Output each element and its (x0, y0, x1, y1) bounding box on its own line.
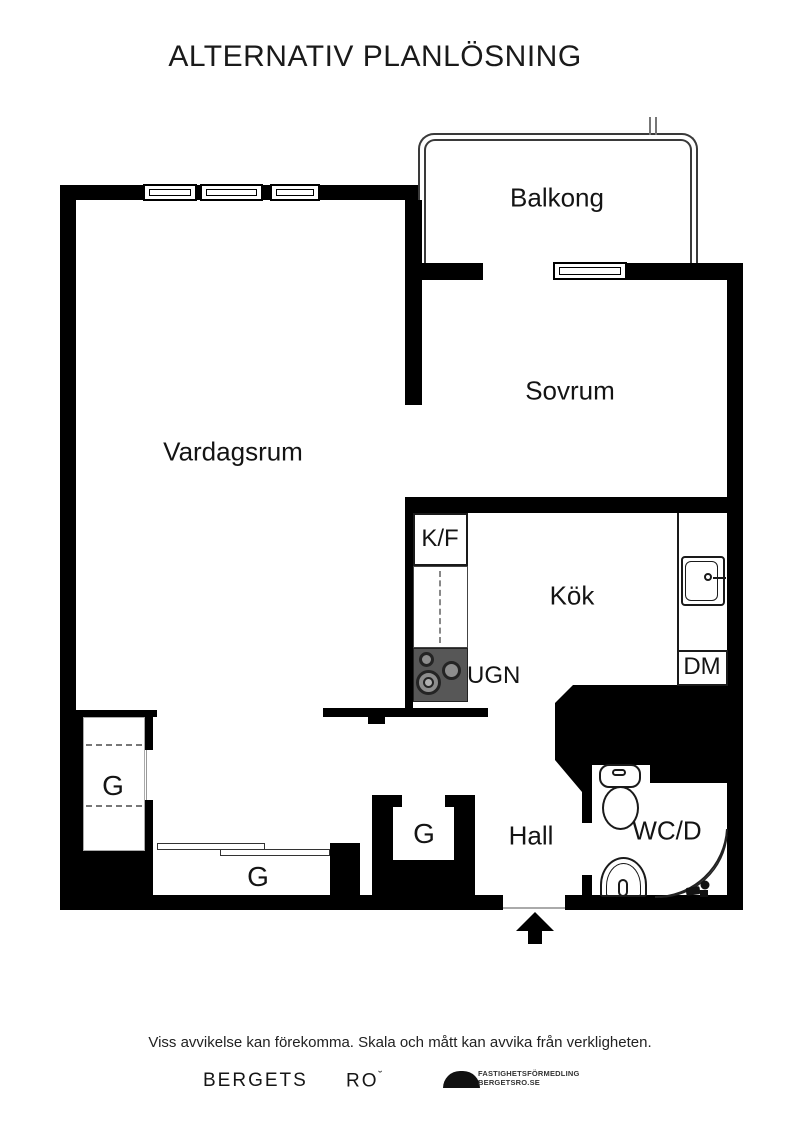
tall-wardrobe-door-line (146, 750, 147, 800)
stove-burner-small (419, 652, 434, 667)
bathroom-sink-tap (618, 879, 628, 897)
brand-word-bergets: BERGETS (203, 1070, 308, 1092)
kitchen-faucet (704, 573, 712, 581)
brand-word-ro-text: RO (346, 1070, 379, 1091)
floorplan-page: ALTERNATIV PLANLÖSNING (0, 0, 800, 1131)
right-wall (727, 263, 743, 910)
sliding-door-2 (220, 849, 330, 856)
window-pane (276, 189, 314, 196)
room-label-bedroom: Sovrum (525, 376, 615, 407)
livingroom-window-1 (143, 184, 197, 201)
room-label-living-room: Vardagsrum (163, 437, 303, 468)
wide-wardrobe-end-wall (330, 843, 360, 895)
livingroom-window-3 (270, 184, 320, 201)
bottom-left-corner-block (60, 851, 153, 910)
livingroom-window-2 (200, 184, 263, 201)
bathroom-wall-mass (555, 685, 728, 824)
kitchen-sink-basin (685, 561, 718, 601)
brand-word-ro: RO˘ (346, 1070, 382, 1092)
label-dishwasher: DM (683, 653, 720, 681)
window-pane (149, 189, 191, 196)
bedroom-top-wall-right (627, 263, 743, 280)
brand-subtext-line1: FASTIGHETSFÖRMEDLING (478, 1069, 580, 1078)
kitchen-divider-wall (405, 497, 743, 513)
page-title: ALTERNATIV PLANLÖSNING (168, 40, 581, 74)
bathroom-door-stub (582, 875, 592, 895)
livingroom-bottom-wall-right (323, 708, 488, 717)
room-label-hall: Hall (509, 821, 554, 852)
entrance-arrow (516, 912, 554, 944)
brand-subtext: FASTIGHETSFÖRMEDLING BERGETSRO.SE (478, 1069, 580, 1087)
window-pane (559, 267, 621, 275)
label-wardrobe-hall: G (413, 818, 435, 850)
label-wardrobe-wide: G (247, 861, 269, 893)
label-oven: UGN (467, 662, 520, 690)
hall-wardrobe-door-opening (402, 795, 445, 808)
label-fridge-freezer: K/F (421, 525, 458, 553)
livingroom-bottom-wall-stub (368, 717, 385, 724)
toilet-flush-button (612, 769, 626, 776)
balcony-vent-mark (649, 117, 657, 135)
brand-trademark: ˘ (379, 1070, 383, 1082)
bedroom-left-wall (405, 200, 422, 405)
left-wall (60, 185, 76, 910)
label-wardrobe-tall: G (102, 770, 124, 802)
room-label-balcony: Balkong (510, 183, 604, 214)
kitchen-left-wall (405, 513, 413, 710)
room-label-kitchen: Kök (550, 581, 595, 612)
window-pane (206, 189, 257, 196)
wardrobe-shelf-line (86, 744, 142, 746)
brand-subtext-line2: BERGETSRO.SE (478, 1078, 580, 1087)
entrance-threshold (503, 907, 565, 909)
counter-dashed-line (439, 571, 441, 643)
kitchen-faucet-stem (713, 577, 726, 579)
stove-burner-large-inner (423, 677, 434, 688)
wardrobe-shelf-line (86, 805, 142, 807)
toilet-tank (599, 764, 641, 788)
disclaimer-text: Viss avvikelse kan förekomma. Skala och … (0, 1034, 800, 1051)
brand-logo-dome (443, 1071, 480, 1088)
bedroom-window (553, 262, 627, 280)
room-label-bathroom: WC/D (632, 816, 701, 847)
stove-burner-medium (442, 661, 461, 680)
